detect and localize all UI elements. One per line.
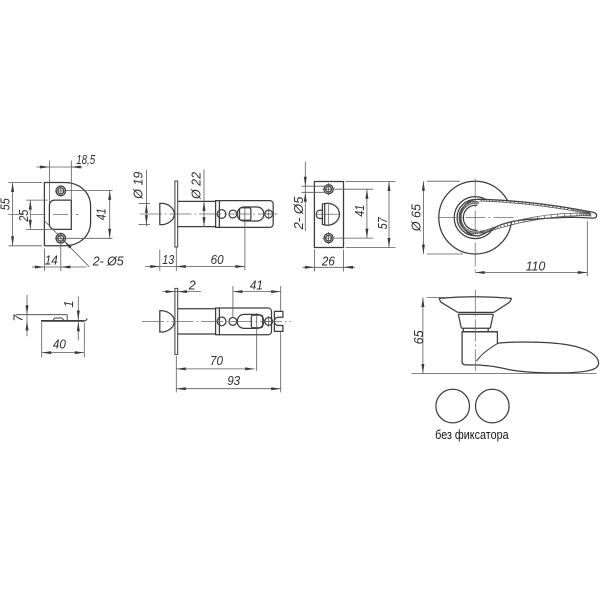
- svg-text:40: 40: [53, 338, 66, 352]
- svg-text:2- Ø5: 2- Ø5: [92, 254, 124, 268]
- svg-text:41: 41: [95, 208, 109, 220]
- svg-text:1: 1: [62, 301, 76, 308]
- svg-text:60: 60: [211, 253, 224, 267]
- svg-text:41: 41: [250, 278, 263, 292]
- svg-text:Ø 65: Ø 65: [410, 204, 424, 232]
- svg-text:без фиксатора: без фиксатора: [435, 427, 509, 442]
- svg-text:93: 93: [227, 374, 240, 388]
- svg-text:7: 7: [12, 314, 26, 322]
- svg-text:41: 41: [353, 205, 367, 217]
- svg-text:13: 13: [162, 253, 174, 267]
- svg-text:2- Ø5: 2- Ø5: [292, 196, 306, 230]
- svg-text:14: 14: [45, 254, 58, 268]
- svg-text:18,5: 18,5: [76, 153, 95, 167]
- svg-text:26: 26: [321, 254, 335, 268]
- svg-text:70: 70: [210, 354, 223, 368]
- svg-text:Ø 22: Ø 22: [189, 172, 203, 200]
- svg-text:55: 55: [0, 198, 13, 210]
- svg-text:110: 110: [526, 259, 546, 273]
- svg-text:57: 57: [376, 216, 390, 229]
- svg-text:25: 25: [17, 210, 31, 223]
- svg-text:2: 2: [188, 278, 196, 292]
- svg-text:65: 65: [412, 330, 426, 344]
- svg-text:Ø 19: Ø 19: [131, 172, 145, 200]
